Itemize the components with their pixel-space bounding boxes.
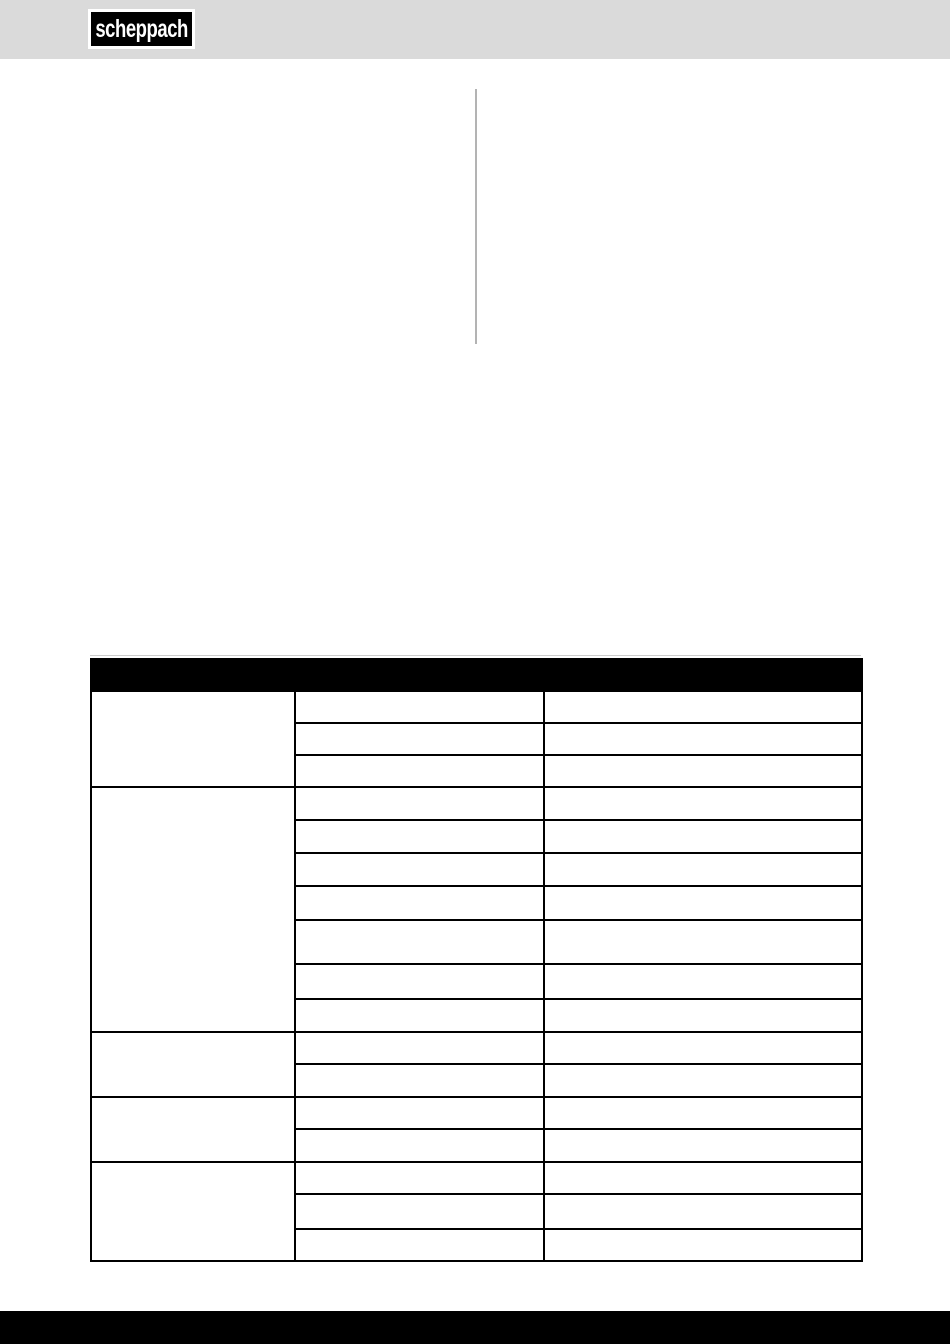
fault-cell — [91, 1097, 295, 1162]
remedy-cell — [544, 1129, 862, 1162]
fault-cell — [91, 1032, 295, 1097]
fault-cell — [91, 1162, 295, 1261]
cause-cell — [295, 755, 544, 787]
column-divider-line — [475, 89, 477, 344]
remedy-cell — [544, 1032, 862, 1064]
remedy-cell — [544, 964, 862, 999]
remedy-cell — [544, 853, 862, 886]
cause-cell — [295, 853, 544, 886]
remedy-cell — [544, 1229, 862, 1261]
remedy-cell — [544, 820, 862, 853]
remedy-cell — [544, 691, 862, 723]
table-row — [91, 787, 862, 820]
cause-cell — [295, 1229, 544, 1261]
remedy-cell — [544, 886, 862, 920]
cause-cell — [295, 787, 544, 820]
cause-cell — [295, 1194, 544, 1229]
remedy-cell — [544, 1194, 862, 1229]
cause-cell — [295, 1032, 544, 1064]
table-top-line — [90, 655, 861, 656]
fault-cell — [91, 691, 295, 787]
cause-cell — [295, 920, 544, 964]
cause-cell — [295, 1064, 544, 1097]
table-row — [91, 691, 862, 723]
remedy-cell — [544, 1097, 862, 1129]
scheppach-logo: scheppach — [88, 9, 195, 49]
fault-cell — [91, 787, 295, 1032]
table-row — [91, 1162, 862, 1194]
table-header-row — [91, 659, 862, 691]
troubleshooting-table — [90, 658, 863, 1262]
table-row — [91, 1097, 862, 1129]
footer-bar — [0, 1311, 950, 1344]
remedy-cell — [544, 999, 862, 1032]
remedy-cell — [544, 920, 862, 964]
remedy-cell — [544, 755, 862, 787]
remedy-cell — [544, 1162, 862, 1194]
cause-cell — [295, 964, 544, 999]
cause-cell — [295, 886, 544, 920]
cause-cell — [295, 723, 544, 755]
cause-cell — [295, 1097, 544, 1129]
logo-wordmark: scheppach — [95, 17, 188, 42]
remedy-cell — [544, 723, 862, 755]
table-header-cell — [91, 659, 862, 691]
cause-cell — [295, 820, 544, 853]
cause-cell — [295, 1129, 544, 1162]
cause-cell — [295, 1162, 544, 1194]
cause-cell — [295, 999, 544, 1032]
header-band: scheppach — [0, 0, 950, 59]
logo-box: scheppach — [91, 12, 192, 46]
remedy-cell — [544, 1064, 862, 1097]
document-page: scheppach — [0, 0, 950, 1344]
remedy-cell — [544, 787, 862, 820]
table-row — [91, 1032, 862, 1064]
cause-cell — [295, 691, 544, 723]
